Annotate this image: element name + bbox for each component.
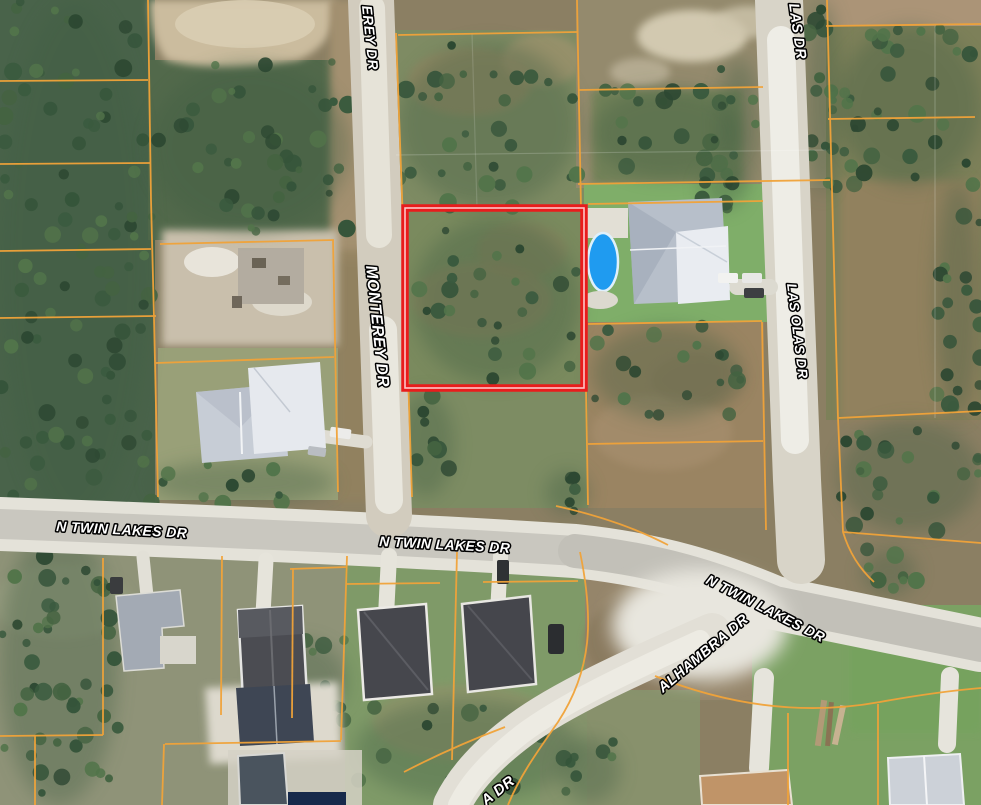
house-bottom-right-tan (700, 770, 792, 805)
car (718, 273, 738, 283)
house-bottom-right-gray (888, 754, 964, 805)
car (497, 560, 509, 584)
building-construction-south (236, 684, 314, 746)
car (110, 577, 123, 594)
car (742, 273, 762, 283)
pool-under-construction (288, 792, 346, 805)
car (744, 288, 764, 298)
house-c (462, 596, 536, 692)
car (548, 624, 564, 654)
house-b (358, 604, 432, 700)
satellite-map[interactable]: EREY DRMONTEREY DRLAS DRLAS OLAS DRN TWI… (0, 0, 981, 805)
pool (588, 233, 618, 291)
map-viewport[interactable]: EREY DRMONTEREY DRLAS DRLAS OLAS DRN TWI… (0, 0, 981, 805)
